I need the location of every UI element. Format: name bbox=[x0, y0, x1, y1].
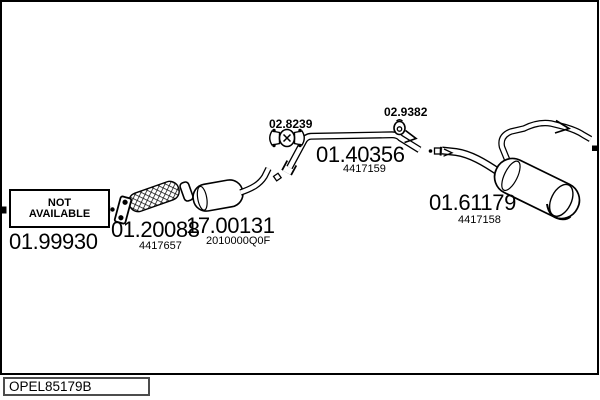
part-code-clamp[interactable]: 02.8239 bbox=[269, 118, 312, 130]
not-available-line2: AVAILABLE bbox=[29, 209, 90, 220]
part-code-front-pipe[interactable]: 01.99930 bbox=[9, 231, 98, 253]
part-code-catalyst[interactable]: 17.00131 bbox=[186, 215, 275, 237]
not-available-box: NOT AVAILABLE bbox=[9, 189, 110, 228]
catalog-code-label: OPEL85179B bbox=[9, 379, 92, 394]
not-available-line1: NOT bbox=[48, 198, 71, 209]
part-code-rear-muffler[interactable]: 01.61179 bbox=[429, 192, 516, 214]
catalytic-converter-drawing bbox=[191, 169, 281, 214]
catalog-code-box: OPEL85179B bbox=[3, 377, 150, 396]
left-edge-connector bbox=[2, 207, 7, 214]
part-ref-rear-muffler: 4417158 bbox=[458, 215, 501, 226]
muffler-inlet-pipe bbox=[441, 147, 500, 173]
part-ref-flex-pipe: 4417657 bbox=[139, 241, 182, 252]
clamp-icon bbox=[270, 129, 305, 147]
part-ref-mid-pipe: 4417159 bbox=[343, 164, 386, 175]
exhaust-diagram-page: NOT AVAILABLE 01.99930 01.20088 4417657 … bbox=[0, 0, 600, 400]
hanger-icon bbox=[394, 120, 405, 135]
part-ref-catalyst: 2010000Q0F bbox=[206, 236, 270, 247]
part-code-hanger[interactable]: 02.9382 bbox=[384, 106, 427, 118]
